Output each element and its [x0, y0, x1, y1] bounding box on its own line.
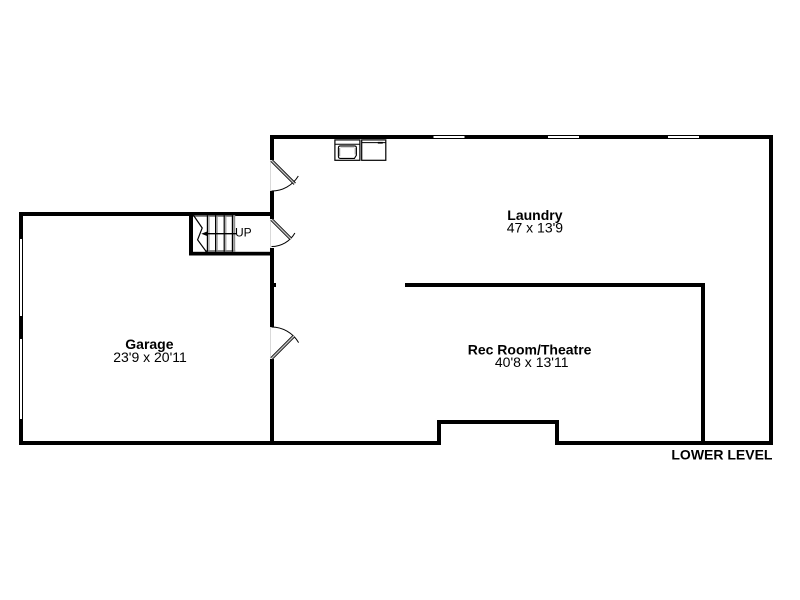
svg-text:40'8 x 13'11: 40'8 x 13'11: [495, 354, 569, 370]
svg-text:47 x 13'9: 47 x 13'9: [507, 220, 564, 236]
svg-text:UP: UP: [235, 226, 252, 240]
svg-text:23'9 x 20'11: 23'9 x 20'11: [113, 349, 187, 365]
svg-text:LOWER LEVEL: LOWER LEVEL: [671, 447, 773, 463]
